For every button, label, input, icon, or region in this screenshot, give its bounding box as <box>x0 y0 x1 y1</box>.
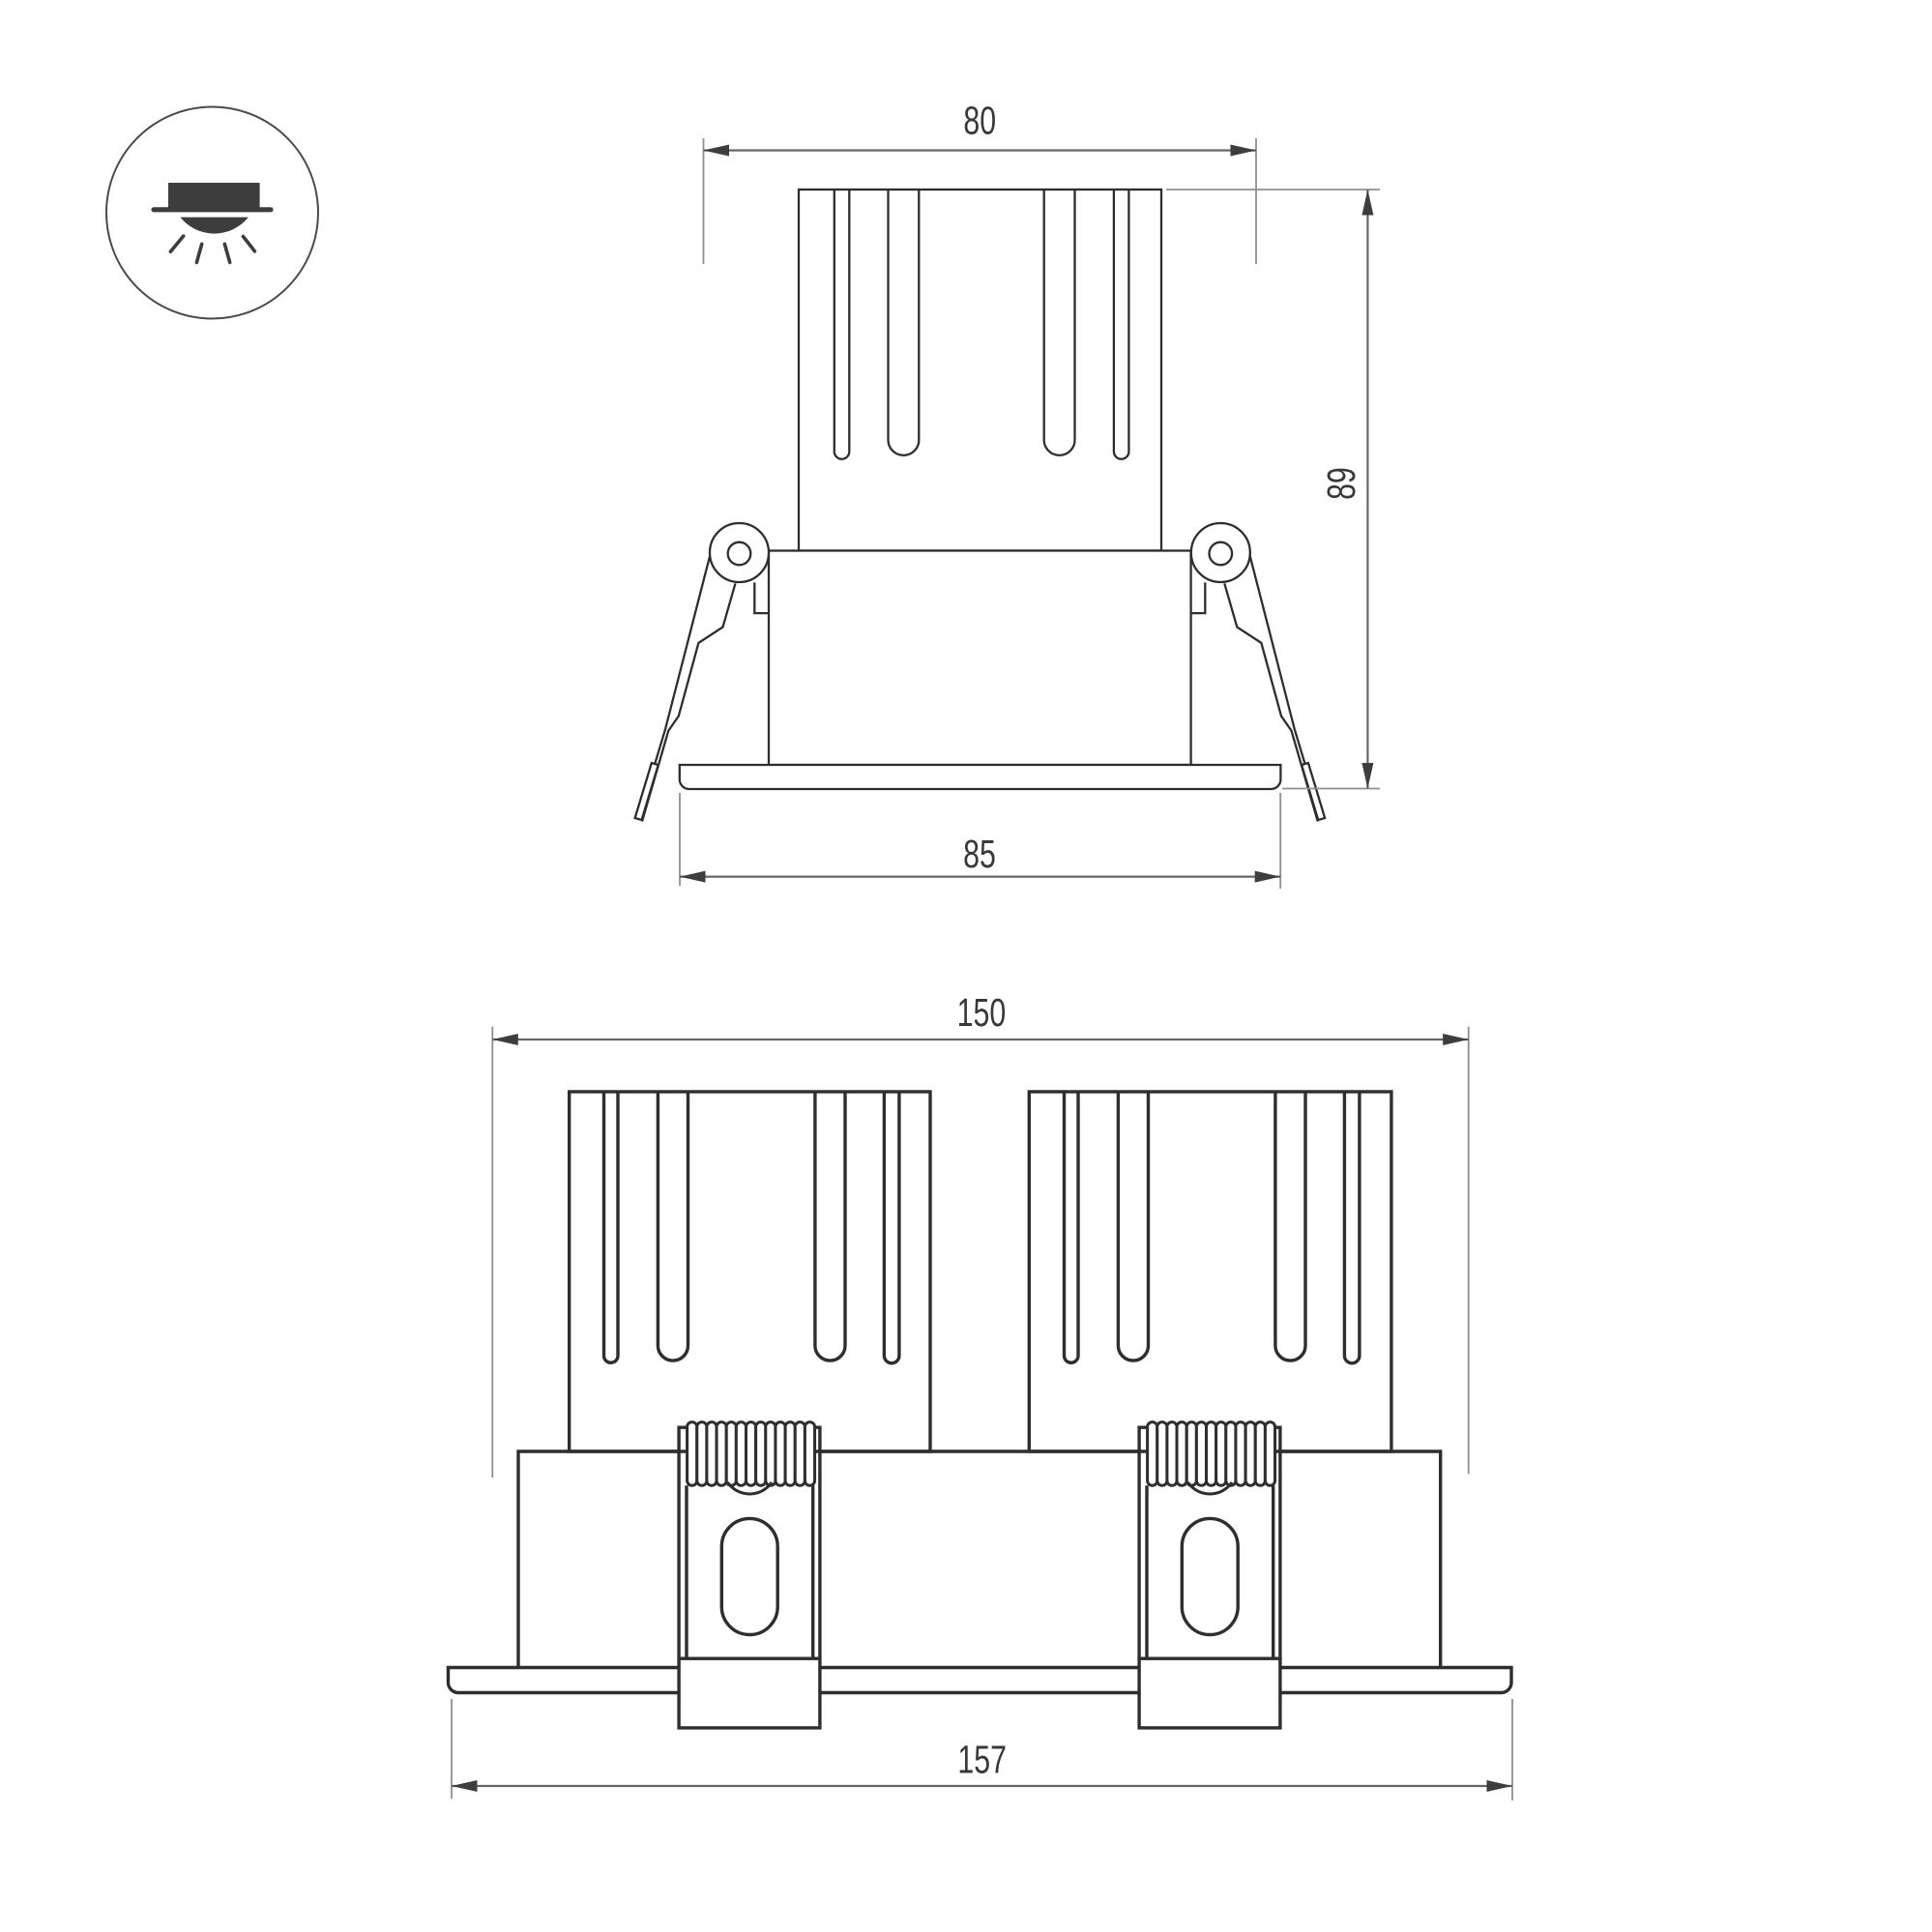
svg-text:157: 157 <box>957 1737 1007 1782</box>
svg-text:85: 85 <box>963 831 996 876</box>
svg-text:89: 89 <box>1318 467 1363 500</box>
svg-text:150: 150 <box>957 989 1007 1035</box>
svg-text:80: 80 <box>963 98 996 143</box>
